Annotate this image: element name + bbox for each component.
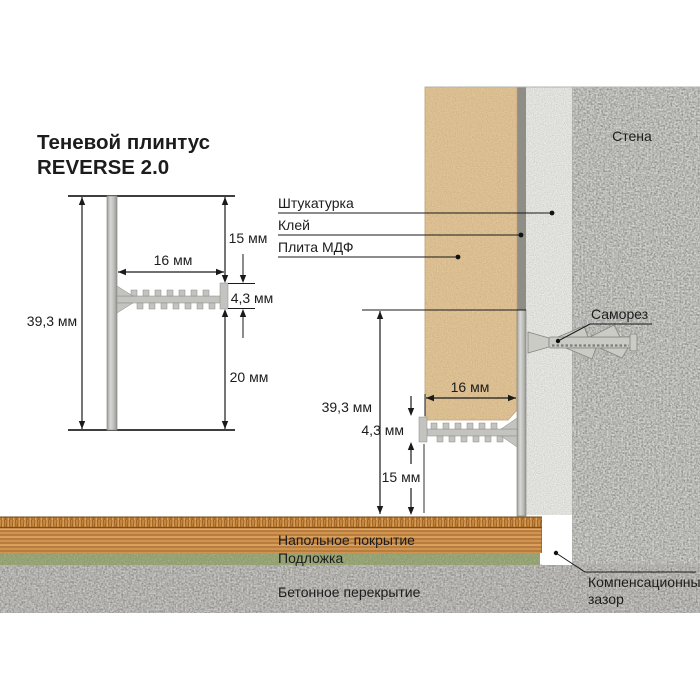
mdf-label: Плита МДФ [278, 239, 353, 255]
glue-leader-dot [519, 233, 524, 238]
expansion-gap-label: зазор [588, 591, 624, 607]
wall-label: Стена [612, 128, 652, 144]
dim-overall-height-installed: 39,3 мм [322, 399, 372, 415]
profile-vertical-bar-installed [517, 310, 526, 516]
profile-drawing: 39,3 мм 16 мм 15 мм 4,3 мм 20 мм [27, 196, 274, 430]
dim-bottom-offset: 20 мм [230, 369, 269, 385]
dim-top-offset: 15 мм [229, 230, 268, 246]
wall-section [572, 87, 700, 565]
baseboard-diagram: Штукатурка Клей Плита МДФ Стена Саморез … [0, 0, 700, 700]
dim-flange-thickness: 4,3 мм [231, 290, 274, 306]
glue-layer [517, 87, 526, 310]
plaster-leader-dot [550, 211, 555, 216]
dim-flange-thickness-installed: 4,3 мм [361, 422, 404, 438]
glue-label: Клей [278, 217, 310, 233]
dim-flange-width-installed: 16 мм [451, 379, 490, 395]
plaster-label: Штукатурка [278, 195, 354, 211]
underlay-label: Подложка [278, 550, 343, 566]
mdf-panel [425, 87, 517, 420]
plaster-layer [526, 87, 572, 515]
mdf-leader-dot [456, 255, 461, 260]
screw-label: Саморез [591, 306, 648, 322]
expansion-gap-area [542, 515, 572, 565]
page-title-line2: REVERSE 2.0 [37, 156, 169, 179]
profile-flange [117, 283, 228, 313]
underlay-layer [0, 553, 540, 565]
dowel-collar [630, 334, 637, 351]
expansion-gap-label: Компенсационный [588, 574, 700, 590]
floor-covering [0, 517, 542, 553]
dimension-arrows-profile [79, 197, 246, 429]
dim-flange-width: 16 мм [154, 252, 193, 268]
profile-vertical-bar [107, 196, 117, 430]
dim-floor-clearance: 15 мм [382, 469, 421, 485]
diagram-page: Штукатурка Клей Плита МДФ Стена Саморез … [0, 0, 700, 700]
screw-leader-dot [556, 339, 560, 343]
slab-label: Бетонное перекрытие [278, 584, 421, 600]
page-title-line1: Теневой плинтус [37, 131, 210, 154]
profile-flange-installed [419, 417, 517, 447]
dim-overall-height: 39,3 мм [27, 313, 77, 329]
floor-covering-label: Напольное покрытие [278, 532, 415, 548]
